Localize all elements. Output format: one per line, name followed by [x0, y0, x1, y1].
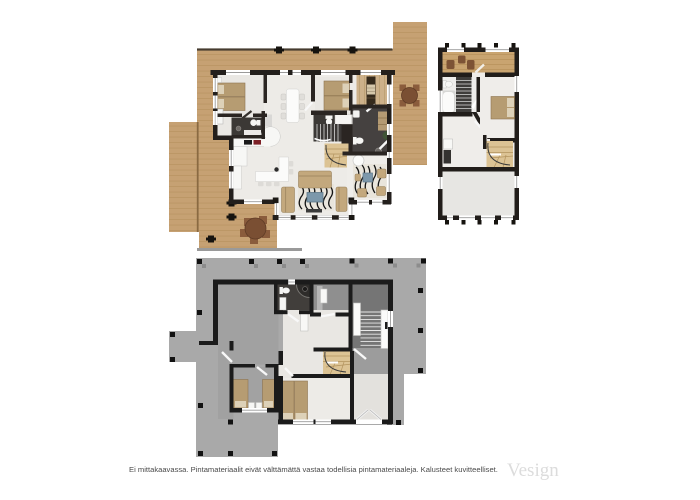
- svg-text:Vesign: Vesign: [507, 460, 559, 481]
- svg-text:Ei mittakaavassa. Pintamateria: Ei mittakaavassa. Pintamateriaalit eivät…: [129, 465, 498, 474]
